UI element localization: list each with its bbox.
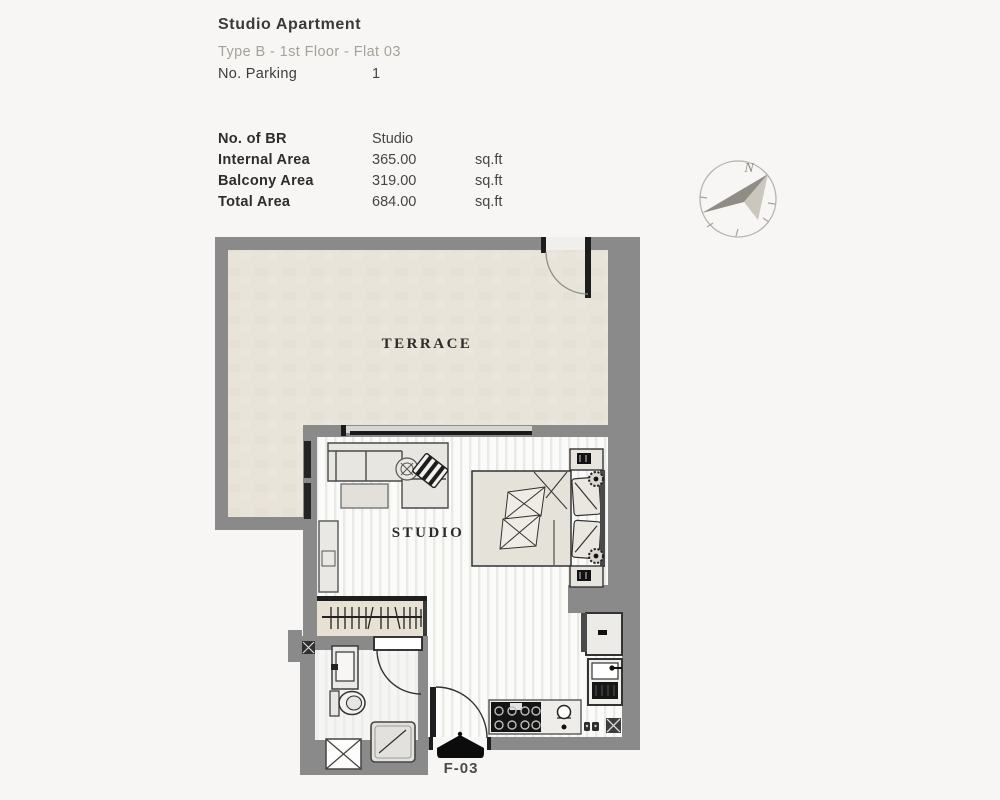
door-leaf <box>374 637 422 650</box>
nightstand-bottom <box>570 566 603 587</box>
shaft-icon-kitchen <box>606 718 621 733</box>
toilet <box>330 691 365 716</box>
tv-unit <box>319 521 338 592</box>
north-arrow-icon <box>702 174 768 220</box>
terrace-label: TERRACE <box>382 336 473 352</box>
compass: N <box>700 161 776 237</box>
sliding-window <box>341 425 532 436</box>
vanity-sink <box>331 646 358 689</box>
door-leaf <box>430 687 436 737</box>
sink-unit <box>588 659 622 705</box>
unit-marker-label: F-03 <box>444 760 479 777</box>
drain-icon <box>302 641 315 654</box>
shower <box>371 722 415 762</box>
stove <box>491 702 541 732</box>
wardrobe-rail <box>317 596 427 636</box>
studio-label: STUDIO <box>392 525 465 541</box>
nightstand-top <box>570 449 603 470</box>
fridge <box>581 613 622 655</box>
north-label: N <box>743 161 754 176</box>
coffee-table <box>341 484 388 508</box>
floor-plan: TERRACE STUDIO F-03 N <box>0 0 1000 800</box>
service-shaft <box>326 739 361 769</box>
kitchen-counter <box>489 700 581 734</box>
door-leaf <box>585 250 591 298</box>
floorplan-page: Studio Apartment Type B - 1st Floor - Fl… <box>0 0 1000 800</box>
